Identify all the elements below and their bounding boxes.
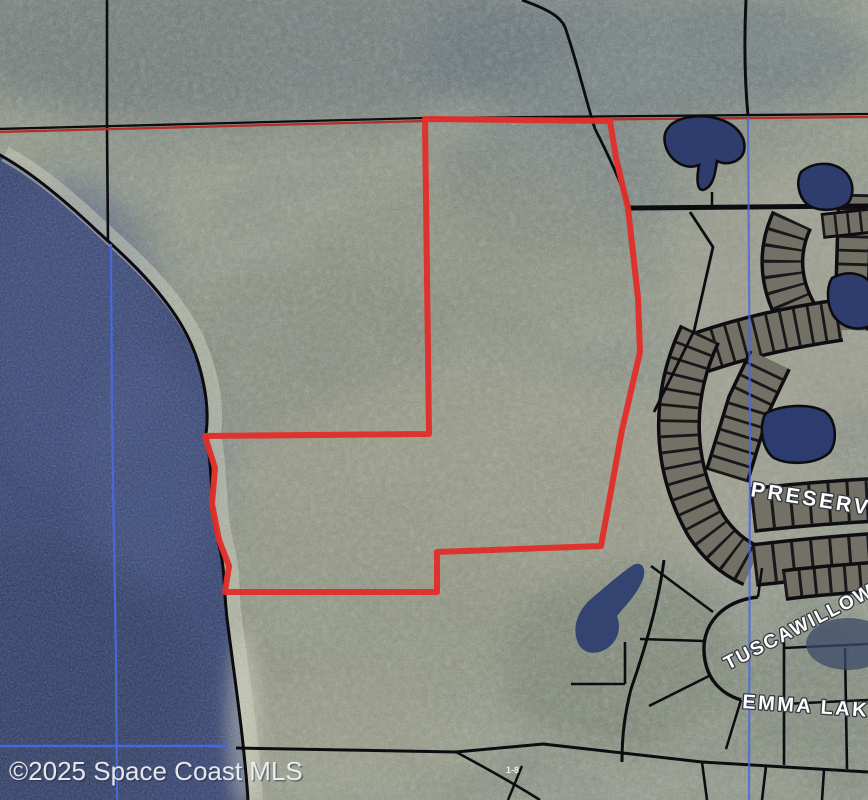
mls-watermark: ©2025 Space Coast MLS ©2025 Space Coast … xyxy=(9,756,304,788)
pond-northeast xyxy=(798,164,852,210)
aerial-basemap: PRESERVE TUSCAWILLOW EMMA LAKE 1-8 ©2025… xyxy=(0,0,868,800)
mls-watermark-text: ©2025 Space Coast MLS xyxy=(9,756,303,786)
pond-subdivision xyxy=(762,406,835,463)
parcel-number-label: 1-8 xyxy=(506,765,519,775)
section-line-west xyxy=(107,0,108,242)
mls-aerial-map-image: PRESERVE TUSCAWILLOW EMMA LAKE 1-8 ©2025… xyxy=(0,0,868,800)
